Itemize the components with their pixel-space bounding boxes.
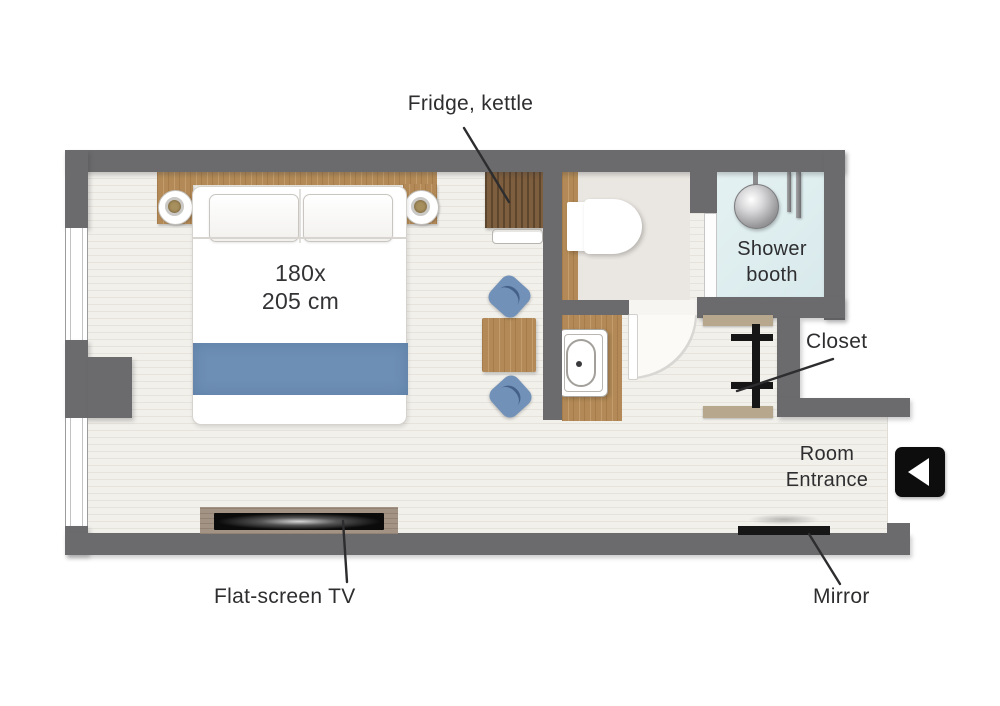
pillow-right	[303, 194, 393, 242]
pillow-left	[209, 194, 299, 242]
wall-bathroom-vertical	[543, 172, 562, 420]
bathroom-door-threshold	[629, 300, 697, 315]
fridge-kettle-label: Fridge, kettle	[398, 92, 543, 116]
room-entrance-icon	[895, 447, 945, 497]
headboard-shelf	[157, 172, 437, 185]
shower-booth-label: Shower booth	[722, 236, 822, 288]
window-lower	[65, 418, 88, 526]
shower-glass-partition	[704, 213, 717, 298]
lamp-left-icon	[158, 190, 193, 225]
wall-column	[88, 357, 132, 418]
wall-left-middle	[65, 340, 88, 418]
bed-blanket	[193, 343, 408, 395]
entrance-label-line1: Room	[752, 441, 902, 467]
window-upper	[65, 228, 88, 340]
room-entrance-label: Room Entrance	[752, 441, 902, 493]
closet-hanger-1	[731, 334, 773, 341]
closet-shelf-top	[703, 315, 773, 326]
wall-top	[65, 150, 845, 172]
shower-head-icon	[734, 184, 779, 229]
shower-fixture-bar-2	[796, 172, 801, 218]
wall-entrance-top	[777, 398, 910, 417]
wall-left-upper	[65, 150, 88, 228]
closet-shelf-bottom	[703, 406, 773, 418]
outside-area-right	[845, 150, 895, 398]
bed-center-line	[299, 189, 301, 243]
sink-drain-icon	[576, 361, 582, 367]
mirror-reflection	[748, 514, 820, 525]
table	[482, 318, 536, 372]
lamp-right-bulb	[411, 197, 430, 216]
bathroom-door-leaf	[628, 314, 638, 380]
wall-bottom	[65, 533, 910, 555]
bed-size-line2: 205 cm	[193, 287, 408, 315]
toilet-bowl	[584, 199, 642, 254]
entrance-label-line2: Entrance	[752, 467, 902, 493]
wall-right-lower	[887, 523, 910, 555]
mirror-label: Mirror	[813, 585, 923, 609]
shower-fixture-bar-1	[787, 172, 791, 212]
lamp-right-icon	[404, 190, 439, 225]
kettle-tray	[492, 229, 543, 244]
wall-toilet-shower-divider	[690, 172, 717, 213]
lamp-left-bulb	[165, 197, 184, 216]
mirror-bar	[738, 526, 830, 535]
sink	[559, 329, 608, 397]
wall-closet-right	[777, 318, 800, 398]
fridge-cabinet	[485, 172, 543, 228]
wall-bathroom-bottom	[543, 300, 629, 315]
tv-label: Flat-screen TV	[214, 585, 384, 609]
tv-screen-icon	[214, 513, 384, 530]
bed-size-line1: 180x	[193, 259, 408, 287]
entrance-arrow-icon	[908, 458, 929, 486]
closet-label: Closet	[806, 330, 896, 354]
bed-size-label: 180x 205 cm	[193, 259, 408, 315]
wall-shower-right	[824, 150, 845, 320]
bed: 180x 205 cm	[192, 186, 407, 425]
shower-label-line1: Shower	[722, 236, 822, 262]
closet-hanger-2	[731, 382, 773, 389]
duvet-fold-line	[193, 237, 406, 239]
floor-plan: 180x 205 cm	[0, 0, 1000, 706]
shower-label-line2: booth	[722, 262, 822, 288]
